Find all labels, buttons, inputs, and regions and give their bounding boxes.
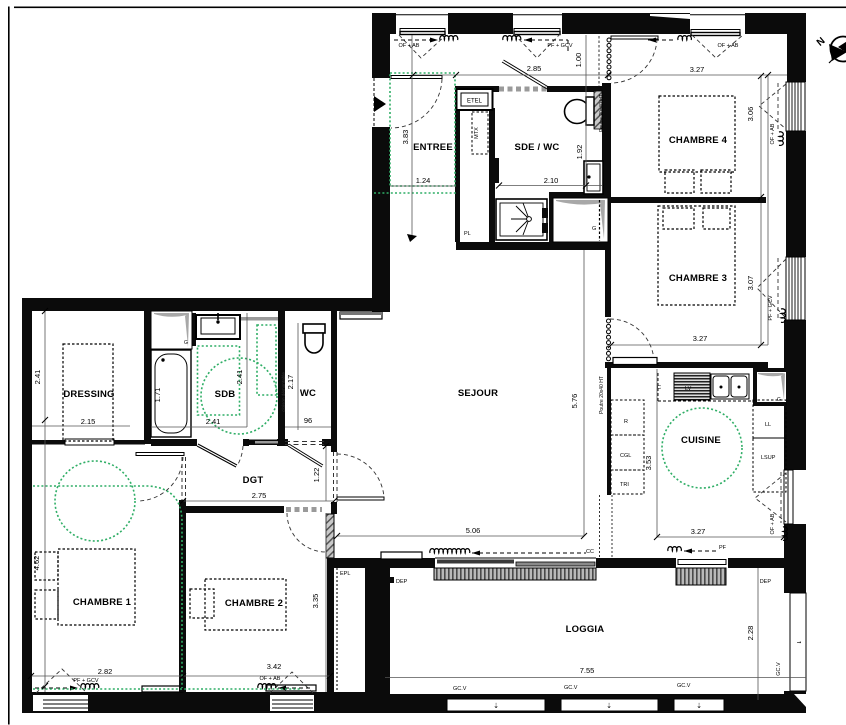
svg-text:2.41: 2.41 bbox=[206, 417, 221, 426]
svg-text:OF + AB: OF + AB bbox=[399, 43, 420, 49]
svg-text:LSUP: LSUP bbox=[761, 455, 776, 461]
svg-text:ETEL: ETEL bbox=[467, 99, 483, 105]
svg-text:G: G bbox=[184, 340, 188, 346]
svg-text:GC.V: GC.V bbox=[564, 685, 578, 691]
svg-text:5.76: 5.76 bbox=[570, 394, 579, 409]
svg-text:3.35: 3.35 bbox=[311, 594, 320, 609]
svg-text:2.82: 2.82 bbox=[98, 667, 113, 676]
svg-text:WC: WC bbox=[300, 388, 316, 399]
svg-text:CHAMBRE 3: CHAMBRE 3 bbox=[669, 273, 727, 284]
svg-text:⇣: ⇣ bbox=[696, 702, 702, 710]
svg-text:EPL: EPL bbox=[340, 571, 350, 577]
svg-text:OF + AB: OF + AB bbox=[770, 513, 776, 534]
svg-text:3.53: 3.53 bbox=[644, 456, 653, 471]
svg-text:3.07: 3.07 bbox=[746, 276, 755, 291]
svg-text:GC.V: GC.V bbox=[776, 662, 782, 676]
svg-text:⇣: ⇣ bbox=[493, 702, 499, 710]
svg-text:GC.V: GC.V bbox=[677, 683, 691, 689]
svg-text:OF + AB: OF + AB bbox=[718, 43, 739, 49]
svg-text:2.28: 2.28 bbox=[746, 626, 755, 641]
svg-text:C: C bbox=[657, 385, 661, 391]
svg-text:ENTREE: ENTREE bbox=[413, 142, 453, 153]
svg-text:PF: PF bbox=[719, 545, 727, 551]
svg-text:Poutre 20x40 HT: Poutre 20x40 HT bbox=[599, 376, 605, 414]
svg-text:3.83: 3.83 bbox=[401, 130, 410, 145]
svg-text:1.22: 1.22 bbox=[312, 468, 321, 483]
svg-text:G: G bbox=[777, 397, 781, 403]
svg-text:OF + AB: OF + AB bbox=[260, 676, 281, 682]
svg-text:DGT: DGT bbox=[243, 475, 264, 486]
svg-text:2.17: 2.17 bbox=[286, 375, 295, 390]
svg-text:PL: PL bbox=[464, 231, 471, 237]
svg-text:CUISINE: CUISINE bbox=[681, 435, 721, 446]
svg-text:DRESSING: DRESSING bbox=[63, 389, 114, 400]
svg-text:2.75: 2.75 bbox=[252, 491, 267, 500]
svg-text:2.15: 2.15 bbox=[81, 417, 96, 426]
svg-text:DEP: DEP bbox=[760, 579, 772, 585]
svg-text:2.41: 2.41 bbox=[33, 370, 42, 385]
svg-text:➞: ➞ bbox=[797, 640, 802, 646]
svg-text:PF + GCV: PF + GCV bbox=[547, 43, 573, 49]
svg-text:R: R bbox=[624, 419, 628, 425]
svg-text:Poutre 20x40 HT: Poutre 20x40 HT bbox=[599, 94, 605, 132]
svg-text:CC: CC bbox=[586, 549, 594, 555]
svg-text:LV: LV bbox=[685, 386, 692, 392]
svg-text:3.06: 3.06 bbox=[746, 107, 755, 122]
svg-text:3.27: 3.27 bbox=[691, 527, 706, 536]
svg-text:PF + GCV: PF + GCV bbox=[73, 678, 99, 684]
svg-text:MTX: MTX bbox=[474, 127, 480, 139]
svg-text:1.00: 1.00 bbox=[574, 53, 583, 68]
svg-text:2.41: 2.41 bbox=[235, 370, 244, 385]
svg-text:3.42: 3.42 bbox=[267, 662, 282, 671]
svg-text:OF + AB: OF + AB bbox=[770, 123, 776, 144]
svg-text:⇣: ⇣ bbox=[606, 702, 612, 710]
svg-text:1.92: 1.92 bbox=[575, 145, 584, 160]
svg-text:CHAMBRE 1: CHAMBRE 1 bbox=[73, 597, 132, 608]
svg-text:2.85: 2.85 bbox=[527, 64, 542, 73]
svg-text:GC.V: GC.V bbox=[453, 686, 467, 692]
svg-text:3.27: 3.27 bbox=[693, 334, 708, 343]
svg-text:SDB: SDB bbox=[215, 389, 236, 400]
svg-text:CGL: CGL bbox=[620, 453, 631, 459]
svg-text:LL: LL bbox=[765, 422, 771, 428]
svg-text:1.24: 1.24 bbox=[416, 176, 431, 185]
svg-text:2.10: 2.10 bbox=[544, 176, 559, 185]
svg-text:cloison démontable: cloison démontable bbox=[281, 372, 286, 412]
svg-text:7.55: 7.55 bbox=[580, 666, 595, 675]
svg-text:1.71: 1.71 bbox=[153, 388, 162, 403]
svg-text:DEP: DEP bbox=[396, 579, 408, 585]
svg-text:G: G bbox=[592, 226, 596, 232]
svg-text:CHAMBRE 2: CHAMBRE 2 bbox=[225, 598, 283, 609]
svg-text:CHAMBRE 4: CHAMBRE 4 bbox=[669, 135, 728, 146]
svg-text:LOGGIA: LOGGIA bbox=[566, 624, 605, 635]
svg-text:SDE / WC: SDE / WC bbox=[515, 142, 560, 153]
svg-text:TRI: TRI bbox=[620, 482, 629, 488]
svg-text:96: 96 bbox=[304, 416, 312, 425]
svg-text:5.06: 5.06 bbox=[466, 526, 481, 535]
svg-text:PF + GCV: PF + GCV bbox=[768, 295, 774, 321]
svg-text:4.62: 4.62 bbox=[32, 556, 41, 571]
svg-text:SEJOUR: SEJOUR bbox=[458, 388, 498, 399]
svg-text:3.27: 3.27 bbox=[690, 65, 705, 74]
